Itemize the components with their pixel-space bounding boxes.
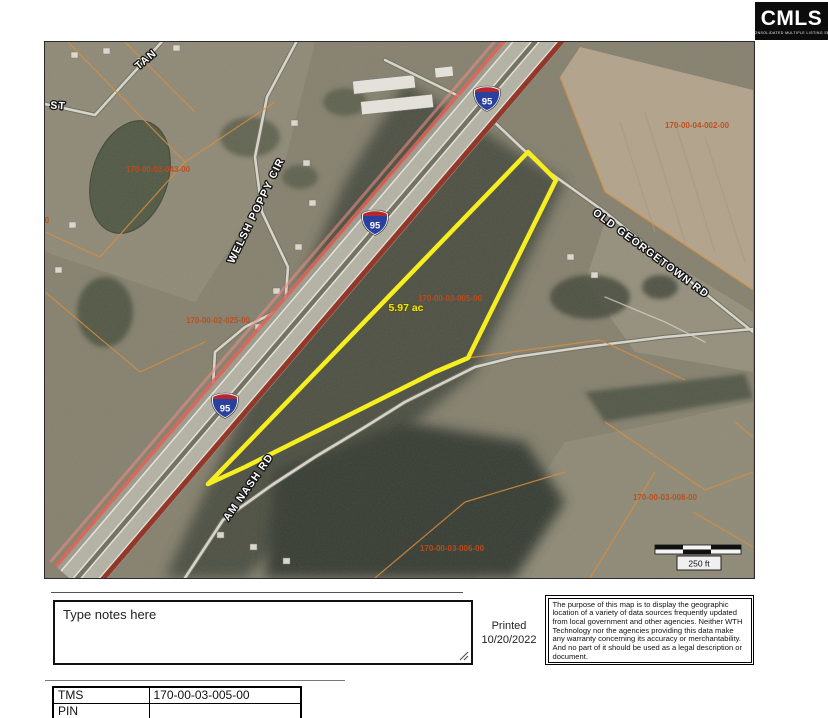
pin-value[interactable]: [149, 703, 301, 718]
table-row: TMS 170-00-03-005-00: [53, 687, 301, 703]
cmls-tagline-rule: [741, 32, 750, 33]
cmls-tagline-row: CONSOLIDATED MULTIPLE LISTING SERVICE: [741, 31, 828, 35]
scale-bar-label: 250 ft: [688, 559, 710, 569]
parcel-label: 170-00-03-008-00: [633, 493, 698, 502]
road-label-st: ST: [50, 99, 67, 112]
row-divider: [51, 592, 463, 593]
notes-placeholder: Type notes here: [63, 607, 156, 622]
printed-info: Printed 10/20/2022: [473, 600, 545, 665]
table-divider: [45, 680, 345, 681]
table-row: PIN: [53, 703, 301, 718]
parcel-label: 170-00-04-002-00: [665, 121, 730, 130]
notes-input[interactable]: Type notes here: [53, 600, 473, 665]
resize-handle-icon[interactable]: [458, 650, 469, 661]
tms-value[interactable]: 170-00-03-005-00: [149, 687, 301, 703]
parcel-label-edge-fragment: 22-00: [45, 216, 50, 225]
printed-label: Printed: [492, 619, 527, 633]
cmls-tagline-text: CONSOLIDATED MULTIPLE LISTING SERVICE: [752, 31, 828, 35]
parcel-map-frame: 95: [44, 41, 755, 579]
parcel-label: 170-00-02-025-00: [186, 316, 251, 325]
cmls-logo: CMLS CONSOLIDATED MULTIPLE LISTING SERVI…: [755, 2, 828, 40]
disclaimer-box: The purpose of this map is to display th…: [545, 595, 754, 665]
parcel-map[interactable]: 95: [45, 42, 753, 578]
tms-label: TMS: [53, 687, 149, 703]
printed-date: 10/20/2022: [481, 633, 536, 647]
parcel-label-subject: 170-00-03-005-00: [418, 294, 483, 303]
pin-label: PIN: [53, 703, 149, 718]
parcel-id-table: TMS 170-00-03-005-00 PIN: [52, 686, 302, 718]
parcel-label: 170-00-03-006-00: [420, 544, 485, 553]
cmls-brand-text: CMLS: [761, 8, 823, 30]
acreage-label: 5.97 ac: [388, 302, 423, 314]
parcel-label: 170-00-02-043-00: [126, 165, 191, 174]
disclaimer-text: The purpose of this map is to display th…: [548, 598, 752, 663]
